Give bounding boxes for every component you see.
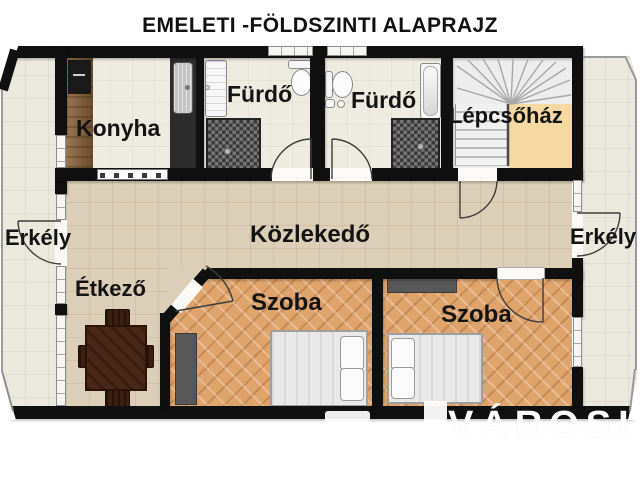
window: [56, 194, 66, 220]
label-kitchen: Konyha: [76, 115, 160, 142]
wall-bath1-bath2: [310, 58, 325, 168]
wardrobe-icon: [175, 333, 197, 405]
window: [573, 317, 582, 367]
wall-pillar: [55, 304, 67, 315]
label-bathroom2: Fürdő: [351, 87, 416, 114]
floor-plan: EMELETI -FÖLDSZINTI ALAPRAJZ: [0, 0, 640, 480]
bath-accessory: [337, 100, 345, 108]
kitchen-sink-icon: [173, 62, 193, 114]
bed-icon: [270, 330, 368, 407]
dining-table-icon: [85, 325, 147, 391]
pillow-icon: [340, 336, 364, 370]
chair-icon: [146, 345, 154, 368]
window: [56, 315, 66, 406]
wall-room-divider: [372, 268, 383, 406]
door-opening-bath2: [330, 168, 372, 181]
wall-room2-top: [383, 268, 497, 279]
label-hallway: Közlekedő: [250, 221, 370, 249]
pillow-icon: [391, 367, 415, 399]
door-opening-room2: [497, 267, 545, 280]
window: [56, 266, 66, 304]
label-room1: Szoba: [251, 289, 322, 317]
label-dining: Étkező: [75, 276, 146, 302]
wall-kitchen-bath1: [196, 58, 204, 168]
pillow-icon: [340, 368, 364, 401]
wall-right: [572, 258, 583, 317]
bathtub-inner: [423, 66, 438, 116]
window: [573, 180, 582, 212]
bed-icon: [387, 333, 483, 404]
door-opening-stairs: [458, 168, 497, 181]
knob-icon: [205, 85, 210, 90]
wall-room2-top: [545, 268, 583, 279]
plan-title: EMELETI -FÖLDSZINTI ALAPRAJZ: [0, 14, 640, 38]
toilet2-icon: [332, 71, 353, 98]
wall-right: [572, 46, 583, 180]
label-bathroom1: Fürdő: [227, 81, 292, 108]
pillow-icon: [391, 338, 415, 370]
chair-icon: [105, 390, 130, 407]
bathtub-icon: [420, 63, 441, 119]
label-balcony-left: Erkély: [5, 225, 71, 251]
blanket: [419, 335, 483, 402]
toilet1-icon: [291, 69, 312, 96]
window: [56, 135, 66, 168]
watermark-text: VÁROSI: [448, 404, 636, 447]
stove-icon: [68, 60, 91, 94]
drain-icon: [417, 143, 424, 150]
washing-machine-icon: [205, 60, 227, 117]
wall-right: [572, 367, 583, 406]
label-room2: Szoba: [441, 301, 512, 329]
sliding-door-kitchen: [97, 169, 168, 180]
faucet-icon: [185, 85, 190, 90]
wall-room1-top: [198, 268, 375, 279]
drain-icon: [224, 148, 231, 155]
wall-room1-left: [160, 313, 170, 406]
label-balcony-right: Erkély: [570, 224, 636, 250]
blanket: [272, 332, 340, 405]
stove-handle: [73, 74, 85, 76]
label-staircase: Lépcsőház: [449, 103, 563, 129]
bath-accessory: [325, 99, 335, 108]
window: [268, 46, 313, 56]
door-opening-bath1: [272, 168, 313, 181]
wall-left: [55, 46, 67, 135]
window: [327, 46, 367, 56]
